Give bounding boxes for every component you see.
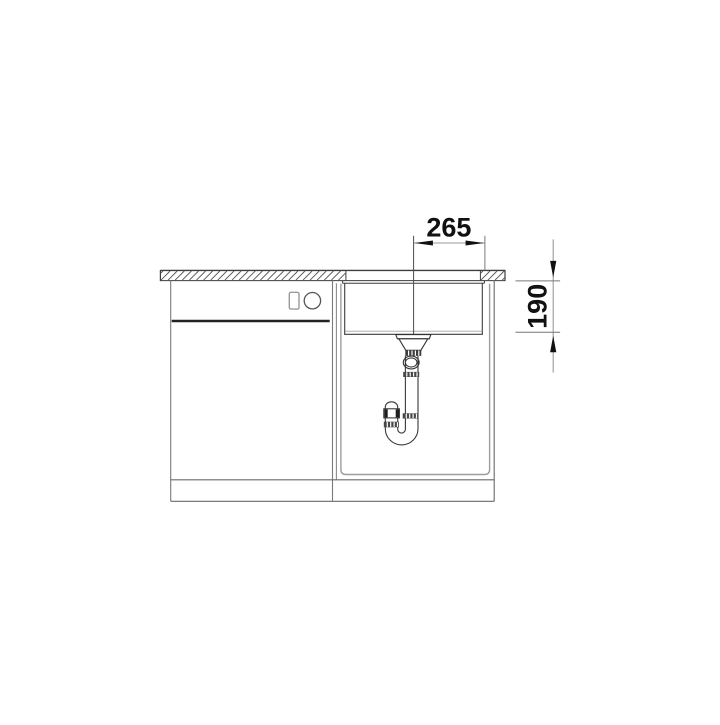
svg-text:190: 190: [523, 284, 553, 329]
svg-text:265: 265: [426, 212, 471, 242]
